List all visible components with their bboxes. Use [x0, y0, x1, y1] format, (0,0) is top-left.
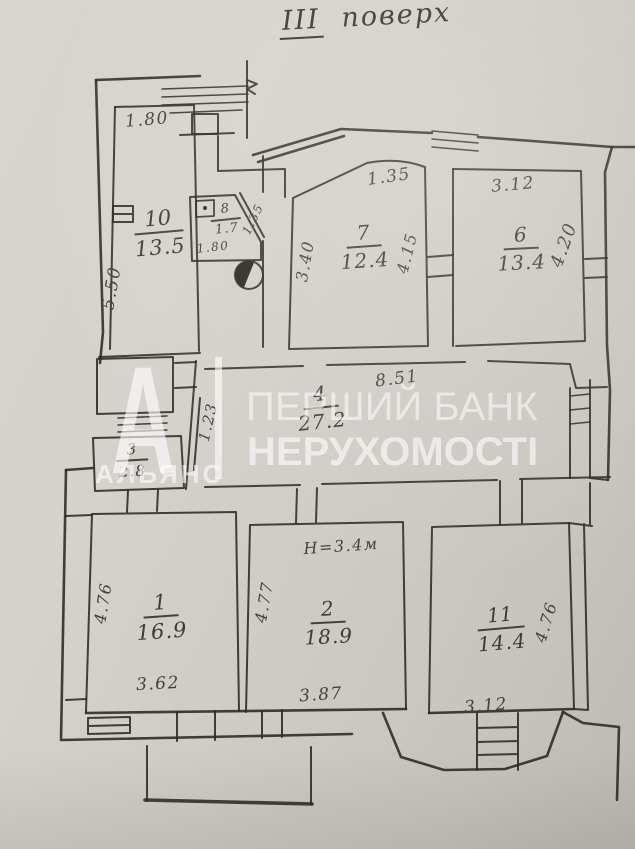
- room-label-10: 10 13.5: [131, 204, 186, 262]
- room-number: 6: [502, 223, 538, 251]
- dim-room11-bottom: 3.12: [463, 694, 508, 718]
- room-label-7: 7 12.4: [338, 220, 390, 274]
- dim-room2-bottom: 3.87: [298, 683, 343, 706]
- dim-room1-bottom: 3.62: [136, 673, 181, 695]
- room-area: 16.9: [136, 616, 188, 646]
- balcony-outline: [145, 746, 312, 804]
- scanned-floorplan-page: III поверх 10 13.5 8 1.7 7 12.4 6 13.4 4…: [0, 0, 635, 849]
- watermark-bank-line1: ПЕРШИЙ БАНК: [246, 387, 538, 427]
- hatched-circle-symbol: [231, 257, 267, 293]
- room-area: 13.5: [134, 231, 187, 261]
- dim-room10-top: 1.80: [124, 108, 169, 132]
- room-number: 10: [132, 204, 183, 235]
- room-label-2: 2 18.9: [302, 596, 353, 649]
- floor-roman-numeral: III: [278, 4, 324, 40]
- dim-room6-top: 3.12: [490, 173, 535, 197]
- room-label-8: 8 1.7: [209, 201, 243, 239]
- room-area: 12.4: [340, 246, 390, 274]
- room-area: 14.4: [477, 627, 528, 656]
- watermark-agency-name: АЛЬЯНС: [95, 461, 224, 487]
- watermark-bank-line2: НЕРУХОМОСТІ: [247, 432, 538, 472]
- room-number: 1: [141, 589, 178, 619]
- room-number: 2: [309, 597, 345, 625]
- room-number: 7: [345, 220, 381, 248]
- room-area: 18.9: [304, 622, 354, 650]
- room-label-6: 6 13.4: [495, 222, 546, 275]
- room-label-11: 11 14.4: [475, 601, 528, 656]
- room-area: 13.4: [497, 248, 547, 276]
- room-label-1: 1 16.9: [134, 589, 188, 646]
- floor-word: поверх: [341, 0, 452, 34]
- room-area: 1.7: [214, 219, 239, 238]
